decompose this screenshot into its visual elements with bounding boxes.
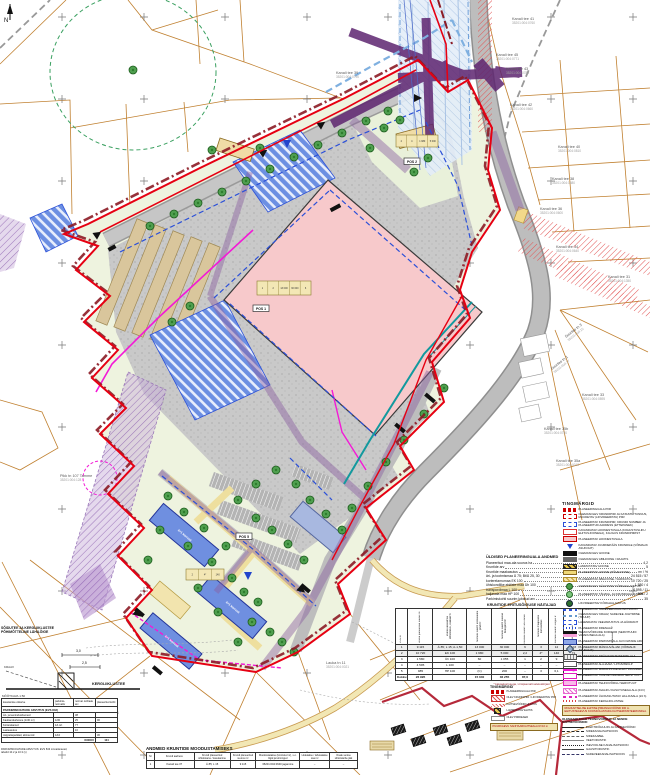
legend-entry: LAMMUTATAV EHITIS — [490, 708, 558, 714]
svg-text:35201:004:0640: 35201:004:0640 — [556, 249, 579, 253]
legend-entry: OLEMASOLEV ABIHOONE / RAJATIS — [562, 557, 650, 562]
legend-entry-label: PLANEERINGUALA PIIR — [507, 691, 536, 694]
legend-entry: LIKVIDEERITAV KÕRGHALJASTUS — [562, 600, 650, 607]
legend-entry: PLANEERINGUALA PIIR — [490, 690, 558, 694]
legend-entry: PLANEERITAV HOONESTUSALA — [562, 536, 650, 542]
tree-icon — [194, 584, 202, 592]
svg-text:35201:004:0771: 35201:004:0771 — [496, 57, 519, 61]
tree-icon — [234, 496, 242, 504]
tree-icon — [380, 124, 388, 132]
legend-entry-label: OLEMASOLEV SÄILITATAV KÕRGHALJASTUS — [579, 585, 641, 588]
legend-entry-label: PLANEERITAV HOONESTUSALA — [579, 538, 623, 541]
svg-text:POS 5: POS 5 — [239, 535, 249, 539]
grid-cross — [58, 177, 66, 185]
legend-entry: PLANEERITAV PRÜGIKONTEINERITE ALA — [562, 654, 650, 660]
parcel-label: Pikk tn 107 Tamme35201:004:128 — [60, 474, 92, 482]
tree-icon — [348, 504, 356, 512]
svg-text:35201:004:0810: 35201:004:0810 — [558, 149, 581, 153]
tree-icon — [180, 508, 188, 516]
linetype-swatch-icon — [562, 754, 584, 755]
tree-icon — [266, 165, 274, 173]
grid-cross — [140, 13, 148, 21]
parcel-label: Kanali tee 3135201:004:1350 — [608, 275, 631, 283]
gridbox-swatch-icon — [563, 654, 577, 660]
legend-entry: PLANEERITAV KRUNDIPIIR, KRUNDI NUMBER JA… — [562, 521, 650, 527]
tree-icon — [228, 574, 236, 582]
svg-text:POS 1: POS 1 — [256, 307, 266, 311]
legend-entry-label: OLEMASOLEV KRAAV, SADEVEE JUHTIMINE (TRU… — [579, 613, 650, 619]
linetype-swatch-icon — [562, 740, 584, 741]
pos-box: POS 2 — [404, 158, 420, 165]
tree-icon — [338, 129, 346, 137]
legend-linetype-entry: SIDEKANALISATSIOON — [562, 730, 650, 733]
legend-entry: OLEV KRUNDIPIIR / LI­KVIDEERITAV PIIR — [490, 695, 558, 702]
parcel-label: Kanali tee 3835201:004:1580 — [552, 177, 575, 185]
tree-icon — [168, 318, 176, 326]
legend-linetype-entry: SIDEKAABEL — [562, 735, 650, 738]
legend-entry: PLANEERITAV ALAJAAM / LIITUMISKILP — [562, 661, 650, 667]
tree-icon — [252, 514, 260, 522]
legend-entry-label: PLANEERITAV MADALPINGE ELEKTRIKAABEL — [579, 668, 642, 671]
tree-icon — [300, 556, 308, 564]
grid-cross — [58, 13, 66, 21]
parcel-label: Kanali tee 3435201:004:0640 — [556, 245, 579, 253]
section-drawing: 3,0 2,5 KRAAV KERGLIIKLUSTEE MÕÕTKAVA 1:… — [0, 627, 236, 699]
svg-text:1 980: 1 980 — [419, 140, 426, 143]
legend-entry: PLANEERITAV ABIHOONE / VARIKATUS — [562, 577, 650, 582]
north-arrow: N — [4, 4, 13, 24]
tree-icon — [184, 542, 192, 550]
legend-entry: OLEMASOLEV KRAAV, SADEVEE JUHTIMINE (TRU… — [562, 613, 650, 619]
bdash2-swatch-icon — [563, 615, 577, 617]
svg-text:35201:004:128: 35201:004:128 — [60, 478, 81, 482]
blackbar-swatch-icon — [563, 551, 577, 556]
tree-icon — [254, 598, 262, 606]
legend-entry-label: OLEMASOLEV ABIHOONE / RAJATIS — [579, 558, 629, 561]
legend-entry-label: PLANEERITAV KERGLIIKLUSTEE — [579, 700, 624, 703]
yelblack-swatch-icon — [563, 564, 577, 569]
tree-icon — [186, 302, 194, 310]
tree-icon — [314, 141, 322, 149]
mini-legend-note-box: PUURKAEVU SANITAARKAITSEALA R=10 m — [490, 723, 558, 731]
legend-entry-label: PLANEERINGUALA PIIR — [579, 508, 611, 511]
legend-entry-label: PLANEERITAV ÜLDKASUTATAV HALJASALA (24 h… — [579, 695, 647, 698]
tree-icon — [366, 144, 374, 152]
parking-total-row: KOKKU124 — [2, 738, 118, 743]
svg-text:POS 2: POS 2 — [407, 160, 417, 164]
parcel-label: Kanali tee 35a35201:004:0013 — [556, 459, 581, 467]
redfill-swatch-icon — [563, 536, 577, 542]
svg-text:35201:004:0790: 35201:004:0790 — [336, 75, 359, 79]
parking-footnote: PARKIMISKOHTADE ARVUTUS: EVS 843 Linnatä… — [1, 748, 151, 754]
parcel-label: Kanali tee 3635201:004:0600 — [540, 207, 563, 215]
tree-icon — [284, 540, 292, 548]
grid-cross — [629, 13, 637, 21]
whitered-swatch-icon — [563, 529, 577, 535]
parking-table: PARKIMISKOHTADE ARVUTUS (EVS 843)kasutam… — [1, 698, 119, 743]
legend-entry: PLANEERITAV KERGLIIKLUSTEE — [562, 700, 650, 703]
legend-entry-label: PLANEERITAV TEHNOVÕRGU SERVITUUT — [579, 682, 637, 685]
svg-text:35201:004:1350: 35201:004:1350 — [608, 279, 631, 283]
linetype-swatch-icon — [562, 727, 584, 728]
legend-entry: PLANEERITAV ÜLDKASUTATAV HALJASALA (24 h… — [562, 695, 650, 698]
grid-cross — [58, 341, 66, 349]
legend-entry-label: LIKVIDEERITAV KÕRGHALJASTUS — [579, 602, 626, 605]
legend: TINGMÄRGID PLANEERINGUALA PIIROLEMASOLEV… — [562, 501, 650, 775]
yelblack_sm-swatch-icon — [494, 708, 501, 714]
yelhatch-swatch-icon — [563, 577, 577, 582]
svg-text:140: 140 — [216, 574, 221, 577]
parcel-label: Kanali tee 4135201:004:0760 — [512, 17, 535, 25]
tree-icon — [306, 496, 314, 504]
legend-entry: KAVANDATAV HOONESTUSALA (KOHUSTUSLIKU EH… — [562, 529, 650, 535]
magdash-swatch-icon — [563, 696, 577, 698]
legend-entry-label: TEHNOVÕRKUDE KORIDOR (SERVITUUDI VAJADUS… — [579, 631, 650, 637]
legend-entry: LAMMUTATAV HOONE — [562, 564, 650, 569]
tree-icon — [240, 588, 248, 596]
legend-entry: OLEMASOLEV HOONE — [562, 551, 650, 556]
legend-entry-label: LAHENDATAV VEEVARUSTUS JA HÜDRANT — [579, 621, 639, 624]
svg-text:35201:004:0780: 35201:004:0780 — [506, 71, 529, 75]
bdash3-swatch-icon — [563, 627, 577, 629]
legend-entry-label: LAMMUTATAV HOONE — [579, 565, 609, 568]
tree-icon — [272, 466, 280, 474]
svg-text:13 000: 13 000 — [280, 287, 288, 290]
tree-icon — [424, 154, 432, 162]
grid-cross — [384, 751, 392, 759]
legend-entry-label: OLEV KRUNDIPIIR / LI­KVIDEERITAV PIIR — [507, 697, 556, 700]
grid-cross — [629, 177, 637, 185]
parking-grid: PARKIMISKOHTADE ARVUTUS (EVS 843)kasutam… — [1, 698, 118, 743]
tree-icon — [292, 480, 300, 488]
mini-legend: TINGMÄRGID PLANEERINGUALA PIIROLEV KRUND… — [490, 685, 558, 733]
grid-cross — [58, 505, 66, 513]
svg-text:35201:004:0895: 35201:004:0895 — [582, 397, 605, 401]
magline-swatch-icon — [563, 669, 577, 671]
graybar-swatch-icon — [563, 557, 577, 562]
tree-icon — [322, 510, 330, 518]
legend-entry: PLANEERINGUALA PIIR — [562, 508, 650, 512]
parcel-label: Kanali tee 4535201:004:0771 — [496, 53, 519, 61]
tree-icon — [164, 492, 172, 500]
svg-text:35201:004:1580: 35201:004:1580 — [552, 181, 575, 185]
building-info-plate: 1213 00030 0006 — [257, 281, 311, 295]
parcel-label: Lauka tn 1135201:004:0021 — [326, 661, 349, 669]
legend-entry: PLANEERITAV TEHNOVÕRGU SERVITUUT — [562, 680, 650, 686]
legend-entry-label: PLANEERITAV PARKIMISALA JA KOHTADE ARV — [579, 640, 643, 643]
tree-icon — [194, 199, 202, 207]
tree-icon — [338, 526, 346, 534]
legend-entry: PLANEERITAV AVALIKU KASUTUSEGA ALA (24 h… — [562, 688, 650, 694]
boundary-swatch-icon — [491, 690, 505, 694]
treex-swatch-icon — [566, 600, 573, 607]
legend-subsection-title: OLEMASOLEVAD TEHNOVÕRGUD JA NENDE KAITSE… — [562, 718, 650, 725]
svg-text:35201:004:0021: 35201:004:0021 — [326, 665, 349, 669]
ehbox-swatch-icon — [563, 661, 577, 667]
parcel-label: Suurtee tn 335201:004:15 — [564, 323, 585, 342]
grid-cross — [384, 587, 392, 595]
grid-cross — [547, 95, 555, 103]
legend-entry: TEHNOVÕRKUDE KORIDOR (SERVITUUDI VAJADUS… — [562, 631, 650, 637]
maghatch-swatch-icon — [563, 688, 577, 694]
treerow-swatch-icon — [566, 591, 573, 598]
tree-icon — [170, 210, 178, 218]
grid-cross — [140, 95, 148, 103]
svg-text:4*: 4* — [204, 574, 206, 577]
tree-icon — [144, 556, 152, 564]
legend-entry-label: KAITSEVÖÖNDI ULATUS — [507, 704, 537, 707]
legend-entry: OLEMASOLEV SÄILITATAV KÕRGHALJASTUS — [562, 583, 650, 590]
tree-icon — [362, 117, 370, 125]
legend-entry: OLEMASOLEV KRUNDIPIIR JA KATASTRITUNNUS,… — [562, 513, 650, 519]
legend-title: TINGMÄRGID — [562, 501, 650, 506]
legend-entry: PLANEERITAV SADEVEEKANALISATSIOON — [562, 608, 650, 611]
tree-icon — [129, 66, 137, 74]
linetype-swatch-icon — [562, 749, 584, 750]
legend-entry-label: OLEMASOLEV HOONE — [579, 552, 610, 555]
linetype-swatch-icon — [562, 736, 584, 737]
svg-text:35201:004:0013: 35201:004:0013 — [556, 463, 579, 467]
grid-cross — [221, 95, 229, 103]
grid-cross — [221, 13, 229, 21]
magbox-swatch-icon — [563, 673, 577, 679]
magbox2-swatch-icon — [563, 680, 577, 686]
building-info-plate: 241 9805 000 — [396, 135, 438, 147]
formation-title: ANDMED KRUNTIDE MOODUSTAMISEKS — [146, 746, 358, 751]
tree-icon — [266, 628, 274, 636]
legend-entry: PLANEERITAV TRANSPORDIMAA SERVITUUT — [562, 673, 650, 679]
linetype-swatch-icon — [562, 745, 584, 746]
parcel-label: Kanali tee 3935201:004:0790 — [336, 71, 359, 79]
reddots-swatch-icon — [563, 700, 577, 702]
legend-entry-label: PLANEERITAV ALAJAAM / LIITUMISKILP — [579, 663, 633, 666]
legend-entry-label: OLEV PIIRDEAED — [507, 717, 529, 720]
bsq-swatch-icon — [563, 620, 577, 625]
pos-box: POS 1 — [253, 305, 269, 312]
grid-cross — [140, 177, 148, 185]
legend-entry: LAHENDATAV VEEVARUSTUS JA HÜDRANT — [562, 620, 650, 625]
legend-entry: PLANEERITAV HOONE (PÕHIHOONE) — [562, 570, 650, 575]
detail-plan-sheet: N Kanali tee 4135201:004:0760Kanali tee … — [0, 0, 650, 775]
svg-text:5 000: 5 000 — [430, 140, 437, 143]
legend-entry: OLEV PIIRDEAED — [490, 716, 558, 721]
tree-icon — [248, 618, 256, 626]
tree-icon — [384, 107, 392, 115]
svg-text:2,5: 2,5 — [82, 661, 87, 665]
cross-section-diagram: SÕIDUTEE JA KERGLIIKLUSTEEPÕHIMÕTTELINE … — [0, 627, 236, 699]
legend-entry-label: PLANEERITAV KRUNDIPIIR, KRUNDI NUMBER JA… — [579, 521, 650, 527]
svg-text:35201:004:0750: 35201:004:0750 — [544, 431, 567, 435]
grid-cross — [303, 13, 311, 21]
tree-icon — [200, 524, 208, 532]
legend-entry-label: PLANEERITAV HOONE (PÕHIHOONE) — [579, 571, 630, 574]
yellow-swatch-icon — [563, 570, 577, 575]
protection-zone-circle — [50, 0, 216, 150]
parcel-label: Kanali tee 3335201:004:0895 — [582, 393, 605, 401]
tree-icon — [156, 526, 164, 534]
tree-icon — [218, 188, 226, 196]
tree-icon — [222, 542, 230, 550]
plot-formation-table: ANDMED KRUNTIDE MOODUSTAMISEKS NrKrundi … — [146, 746, 358, 769]
tree-icon — [146, 222, 154, 230]
table-header: kasutamise otstarveparkimis- normatiivno… — [2, 699, 118, 707]
grid-cross — [303, 95, 311, 103]
mini-legend-title: TINGMÄRGID — [490, 685, 558, 689]
tree-icon — [208, 558, 216, 566]
legend-entry-label: PLANEERITAV ABIHOONE / VARIKATUS — [579, 578, 633, 581]
diamond-swatch-icon — [565, 645, 573, 653]
tree-icon — [410, 168, 418, 176]
legend-entry: KAITSEVÖÖNDI ULATUS — [490, 704, 558, 707]
redhatchs-swatch-icon — [491, 704, 505, 707]
tree-icon — [252, 480, 260, 488]
legend-linetype-entry: VEETORUSTIK — [562, 739, 650, 742]
legend-entry-label: OLEMASOLEV KRUNDIPIIR JA KATASTRITUNNUS,… — [579, 513, 650, 519]
tree-icon — [290, 153, 298, 161]
table-header: NrKrundi aadressKrundi planeeritud sihto… — [147, 753, 358, 761]
linetype-swatch-icon — [562, 731, 584, 732]
blackpink-swatch-icon — [563, 631, 577, 637]
grid-cross — [547, 505, 555, 513]
legend-entry: PLANEERITAV PARKIMISALA JA KOHTADE ARV — [562, 639, 650, 645]
svg-text:30 000: 30 000 — [291, 287, 299, 290]
table-row: 1Kanali tee 37Ä 85; L 159 11535201:004:0… — [147, 761, 358, 769]
bluedash_box-swatch-icon — [563, 522, 577, 527]
tree-icon — [278, 638, 286, 646]
tree-swatch-icon — [566, 583, 573, 590]
legend-linetype-entry: SADEVEEKANALISATSIOON — [562, 753, 650, 756]
redhatchw-swatch-icon — [491, 695, 505, 702]
grid-cross — [466, 341, 474, 349]
legend-entry: PLANEERITAV MADALPINGE ELEKTRIKAABEL — [562, 668, 650, 671]
tree-icon — [242, 177, 250, 185]
legend-linetype-entry: GAASITORUSTIK — [562, 748, 650, 751]
legend-entry: KAVANDATAV JUURDEPÄÄS KRUNDILE (VÕIMALIK… — [562, 544, 650, 550]
tree-icon — [214, 608, 222, 616]
legend-entry: PLANEERITAV TÄNAVA- JA KRUNDIHALJASTUS — [562, 591, 650, 598]
grid-cross — [466, 505, 474, 513]
svg-text:3,0: 3,0 — [76, 649, 81, 653]
grid-cross — [629, 95, 637, 103]
svg-text:35201:004:0760: 35201:004:0760 — [512, 21, 535, 25]
legend-entry-label: PLANEERITAV TÄNAVA- JA KRUNDIHALJASTUS — [579, 593, 644, 596]
tree-icon — [208, 146, 216, 154]
parcel-label: Kanali tee 4235201:004:0660 — [510, 103, 533, 111]
legend-entry-label: PLANEERITAV MÄNGUVÄLJAK (VÕIMALIK ASUKOH… — [579, 646, 650, 652]
legend-entry-label: KAVANDATAV JUURDEPÄÄS KRUNDILE (VÕIMALIK… — [579, 544, 650, 550]
formation-grid: NrKrundi aadressKrundi planeeritud sihto… — [146, 752, 358, 769]
krunt-swatch-icon — [563, 514, 577, 519]
legend-entry-label: PLANEERITAV SADEVEEKANALISATSIOON — [579, 608, 638, 611]
legend-entry: PLANEERITAV MÄNGUVÄLJAK (VÕIMALIK ASUKOH… — [562, 646, 650, 652]
parcel-label: Kanali tee 35b35201:004:0750 — [544, 427, 568, 435]
boundary-swatch-icon — [563, 508, 577, 512]
grid-cross — [629, 423, 637, 431]
grid-cross — [58, 259, 66, 267]
legend-entry-label: PLANEERITAV TRANSPORDIMAA SERVITUUT — [579, 674, 641, 677]
svg-text:KRAAV: KRAAV — [4, 665, 14, 669]
legend-entry-label: PLANEERITAV PRÜGIKONTEINERITE ALA — [579, 655, 636, 658]
grid-cross — [58, 423, 66, 431]
svg-text:35201:004:0660: 35201:004:0660 — [510, 107, 533, 111]
legend-note-box: RIIGIKAITSELISE EHITISE PIIRANGUVÖÖND 30… — [562, 705, 650, 716]
north-label: N — [4, 18, 8, 24]
legend-entry-label: LAMMUTATAV EHITIS — [507, 710, 533, 713]
grid-cross — [466, 751, 474, 759]
building-info-plate: 24*140 — [186, 569, 224, 580]
grid-cross — [547, 751, 555, 759]
legend-entry-label: KAVANDATAV HOONESTUSALA (KOHUSTUSLIKU EH… — [579, 529, 650, 535]
pos-box: POS 5 — [236, 533, 252, 540]
bdash-swatch-icon — [563, 609, 577, 611]
svg-text:35201:004:0600: 35201:004:0600 — [540, 211, 563, 215]
bluearrow-swatch-icon — [567, 544, 573, 549]
parcel-label: Kanali tee 4335201:004:0780 — [506, 67, 529, 75]
whitepair-swatch-icon — [491, 716, 505, 721]
tree-icon — [268, 526, 276, 534]
grid-cross — [629, 341, 637, 349]
grid-cross — [384, 13, 392, 21]
grid-cross — [58, 95, 66, 103]
tree-icon — [396, 116, 404, 124]
svg-text:KERGLIIKLUSTEE: KERGLIIKLUSTEE — [92, 682, 126, 686]
legend-entry-label: PLANEERITAV AVALIKU KASUTUSEGA ALA (24 h… — [579, 689, 646, 692]
parcel-label: Kanali tee 4035201:004:0810 — [558, 145, 581, 153]
